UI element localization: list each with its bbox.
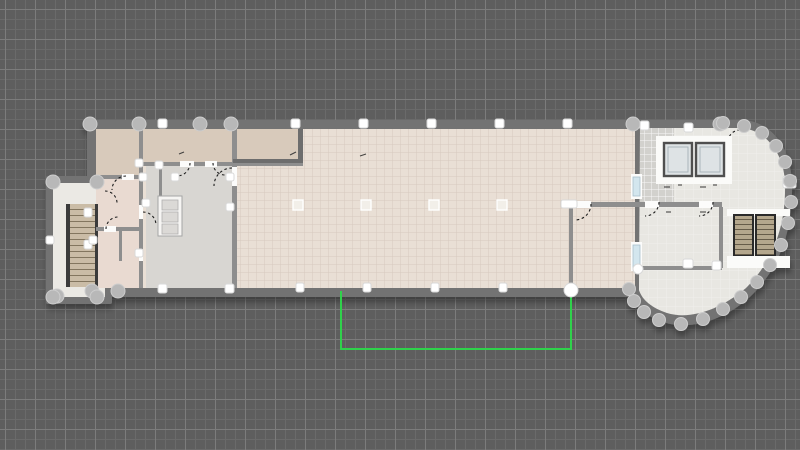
stair-rail-right [95,204,98,287]
elevator-bank[interactable] [656,136,732,184]
hall-column[interactable] [293,200,303,210]
stair-rail-left [66,204,70,287]
draft-wall-outline[interactable] [341,291,571,349]
hall-column[interactable] [361,200,371,210]
escalator-landing-bottom [727,256,790,268]
staircase[interactable] [66,204,98,287]
building[interactable] [46,117,798,331]
escalator-2[interactable] [756,215,775,256]
escalator-1[interactable] [734,215,753,256]
service-shaft[interactable] [158,196,182,236]
hall-column[interactable] [497,200,507,210]
plan-canvas[interactable] [0,0,800,450]
draft-endpoint-handle[interactable] [564,283,578,297]
window-1[interactable] [633,177,640,196]
room-topleft-tan[interactable] [96,129,139,176]
room-top-strip-tan[interactable] [143,129,302,163]
floor-plan-svg [0,0,800,450]
hall-column[interactable] [429,200,439,210]
